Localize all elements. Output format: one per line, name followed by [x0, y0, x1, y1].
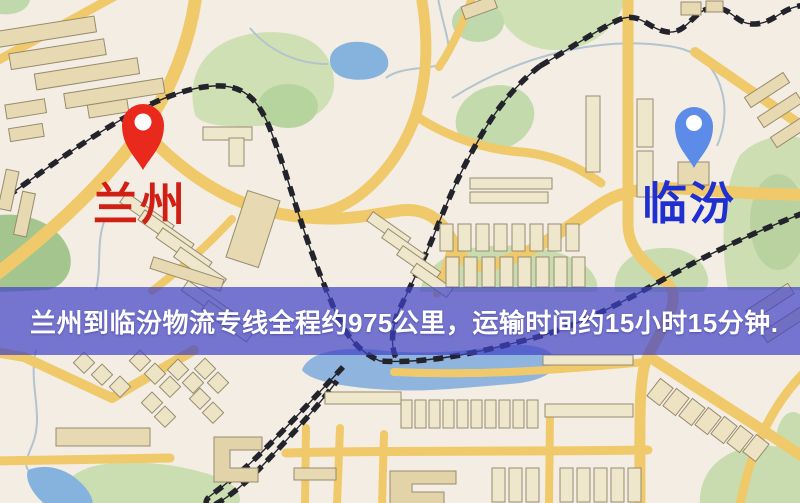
route-info-banner: 兰州到临汾物流专线全程约975公里，运输时间约15小时15分钟.: [0, 287, 800, 355]
pin-hole: [686, 115, 702, 131]
route-info-text: 兰州到临汾物流专线全程约975公里，运输时间约15小时15分钟.: [0, 303, 778, 340]
map-canvas[interactable]: 兰州 临汾: [0, 0, 800, 503]
map-screenshot: 兰州 临汾 兰州到临汾物流专线全程约975公里，运输时间约15小时15分钟.: [0, 0, 800, 503]
origin-city-label: 兰州: [93, 180, 187, 230]
destination-city-label: 临汾: [642, 179, 736, 229]
pin-hole: [135, 114, 152, 131]
